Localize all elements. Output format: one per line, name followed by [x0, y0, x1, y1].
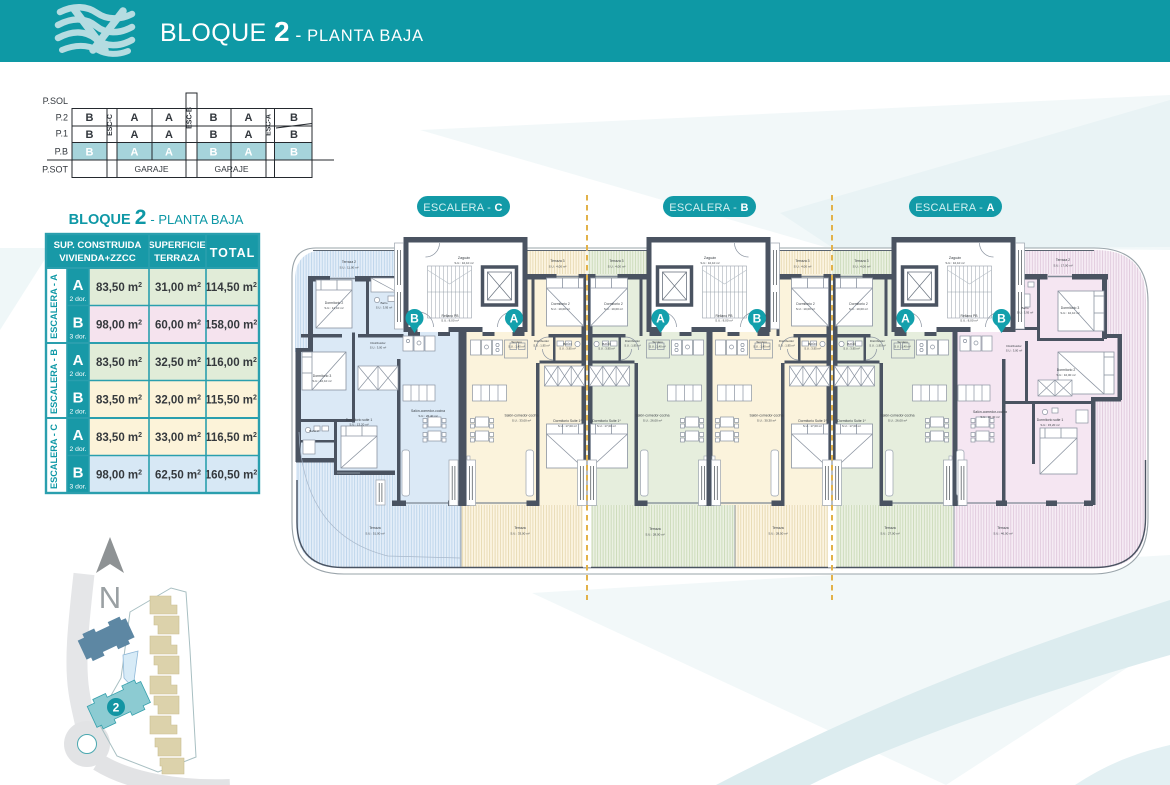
svg-text:Salón-comedor-cocina: Salón-comedor-cocina: [750, 414, 784, 418]
svg-text:S.U.: 17,00 m²: S.U.: 17,00 m²: [1053, 264, 1072, 268]
svg-text:Dormitorio 3: Dormitorio 3: [313, 374, 332, 378]
svg-text:Terraza 3: Terraza 3: [795, 259, 809, 263]
svg-text:158,00 m2: 158,00 m2: [205, 320, 258, 332]
svg-text:83,50 m2: 83,50 m2: [96, 432, 142, 444]
svg-text:P.1: P.1: [56, 129, 68, 139]
svg-text:ESCALERA - B: ESCALERA - B: [669, 202, 748, 214]
svg-text:S.U.: 30,40 m²: S.U.: 30,40 m²: [980, 415, 999, 419]
svg-text:Salón-comedor-cocina: Salón-comedor-cocina: [636, 414, 670, 418]
svg-text:A: A: [131, 129, 139, 141]
svg-text:P.B: P.B: [55, 147, 68, 157]
svg-text:ESC-C: ESC-C: [107, 114, 114, 136]
svg-text:A: A: [901, 312, 910, 326]
svg-text:S.U.: 27,00 m²: S.U.: 27,00 m²: [880, 532, 899, 536]
svg-text:Dormitorio 2: Dormitorio 2: [325, 301, 344, 305]
svg-text:Terraza: Terraza: [649, 527, 660, 531]
svg-text:S.U.: 1,40 m²: S.U.: 1,40 m²: [649, 345, 666, 349]
svg-text:Distribuidor: Distribuidor: [1006, 344, 1021, 348]
svg-text:Distribuidor: Distribuidor: [625, 339, 640, 343]
svg-text:32,00 m2: 32,00 m2: [155, 395, 201, 407]
svg-text:S.U.: 10,10 m²: S.U.: 10,10 m²: [312, 379, 331, 383]
svg-text:2 dor.: 2 dor.: [69, 409, 86, 416]
svg-text:S.U.: 1,40 m²: S.U.: 1,40 m²: [753, 345, 770, 349]
svg-text:S.U.: 1,40 m²: S.U.: 1,40 m²: [508, 345, 525, 349]
svg-text:P.2: P.2: [56, 113, 68, 123]
svg-text:A: A: [165, 112, 173, 124]
svg-text:ESCALERA - B: ESCALERA - B: [49, 349, 59, 414]
svg-text:S.U.: 1,95 m²: S.U.: 1,95 m²: [624, 344, 641, 348]
svg-text:Dormitorio Suite 1º: Dormitorio Suite 1º: [592, 419, 621, 423]
svg-text:116,50 m2: 116,50 m2: [205, 432, 257, 444]
svg-text:Terraza: Terraza: [997, 526, 1008, 530]
svg-text:3 dor.: 3 dor.: [69, 484, 86, 491]
svg-text:S.U.: 4,00 m²: S.U.: 4,00 m²: [794, 265, 812, 269]
svg-text:Zaguán: Zaguán: [704, 256, 716, 260]
svg-text:GARAJE: GARAJE: [134, 164, 168, 174]
svg-text:S.U.: 11,00 m²: S.U.: 11,00 m²: [339, 266, 358, 270]
svg-text:S.U.: 10,10 m²: S.U.: 10,10 m²: [1060, 311, 1079, 315]
svg-text:S.U.: 3,95 m²: S.U.: 3,95 m²: [559, 347, 576, 351]
svg-text:A: A: [131, 112, 139, 124]
svg-text:62,50 m2: 62,50 m2: [155, 470, 201, 482]
svg-text:S.U.: 8,00 m²: S.U.: 8,00 m²: [441, 319, 459, 323]
svg-text:SUP. CONSTRUIDA: SUP. CONSTRUIDA: [54, 240, 142, 251]
svg-text:S.U.: 4,00 m²: S.U.: 4,00 m²: [608, 265, 626, 269]
svg-text:S.U.: 33,00 m²: S.U.: 33,00 m²: [512, 419, 531, 423]
svg-text:A: A: [165, 147, 173, 159]
svg-text:S.U.: 26,40 m²: S.U.: 26,40 m²: [418, 414, 437, 418]
svg-text:BLOQUE 2 - PLANTA BAJA: BLOQUE 2 - PLANTA BAJA: [69, 206, 244, 229]
svg-text:Dormitorio suite 1: Dormitorio suite 1: [1037, 418, 1064, 422]
svg-text:B: B: [290, 129, 298, 141]
svg-text:S.U.: 3,00 m²: S.U.: 3,00 m²: [370, 346, 387, 350]
svg-text:Rellano PB: Rellano PB: [442, 314, 460, 318]
svg-text:A: A: [73, 277, 84, 294]
svg-text:Tendero: Tendero: [897, 340, 908, 344]
svg-text:Tendero: Tendero: [756, 340, 767, 344]
svg-text:S.U.: 46,00 m²: S.U.: 46,00 m²: [993, 532, 1012, 536]
svg-text:Dormitorio 2: Dormitorio 2: [551, 302, 570, 306]
svg-text:Terraza: Terraza: [884, 526, 895, 530]
svg-text:S.U.: 8,00 m²: S.U.: 8,00 m²: [715, 319, 733, 323]
svg-text:Tendero: Tendero: [652, 340, 663, 344]
svg-text:S.U.: 3,95 m²: S.U.: 3,95 m²: [843, 347, 860, 351]
svg-text:A: A: [73, 352, 84, 369]
svg-text:B: B: [290, 112, 298, 124]
svg-text:B: B: [210, 112, 218, 124]
svg-text:S.U.: 10,00 m²: S.U.: 10,00 m²: [604, 307, 623, 311]
svg-text:160,50 m2: 160,50 m2: [205, 470, 258, 482]
svg-text:B: B: [997, 312, 1006, 326]
svg-text:Dormitorio suite 1: Dormitorio suite 1: [346, 418, 373, 422]
svg-text:B: B: [86, 129, 94, 141]
svg-text:S.U.: 8,00 m²: S.U.: 8,00 m²: [960, 319, 978, 323]
svg-text:Terraza 3: Terraza 3: [854, 259, 868, 263]
svg-text:A: A: [510, 312, 519, 326]
svg-text:S.U.: 10,00 m²: S.U.: 10,00 m²: [1056, 373, 1075, 377]
svg-text:ESCALERA - C: ESCALERA - C: [423, 202, 502, 214]
svg-text:Terraza: Terraza: [772, 526, 783, 530]
svg-text:TERRAZA: TERRAZA: [154, 253, 200, 264]
svg-text:Rellano PB: Rellano PB: [961, 314, 979, 318]
svg-text:ESCALERA - A: ESCALERA - A: [49, 274, 59, 339]
svg-text:Terraza 2: Terraza 2: [342, 260, 356, 264]
svg-text:B: B: [86, 147, 94, 159]
svg-text:Dormitorio 2: Dormitorio 2: [604, 302, 623, 306]
svg-text:S.U.: 10,10 m²: S.U.: 10,10 m²: [454, 261, 473, 265]
svg-text:S.U.: 26,00 m²: S.U.: 26,00 m²: [888, 419, 907, 423]
svg-text:S.U.: 10,10 m²: S.U.: 10,10 m²: [945, 261, 964, 265]
svg-text:S.U.: 1,95 m²: S.U.: 1,95 m²: [869, 344, 886, 348]
svg-text:S.U.: 15,20 m²: S.U.: 15,20 m²: [1040, 423, 1059, 427]
svg-text:ESCALERA - A: ESCALERA - A: [915, 202, 994, 214]
svg-text:BAÑO: BAÑO: [847, 341, 856, 346]
svg-text:Dormitorio 2: Dormitorio 2: [796, 302, 815, 306]
svg-text:Zaguán: Zaguán: [458, 256, 470, 260]
svg-text:Zaguán: Zaguán: [949, 256, 961, 260]
svg-text:S.U.: 51,00 m²: S.U.: 51,00 m²: [365, 532, 384, 536]
svg-text:S.U.: 28,50 m²: S.U.: 28,50 m²: [768, 532, 787, 536]
svg-text:Salón-comedor-cocina: Salón-comedor-cocina: [411, 409, 445, 413]
svg-text:S.U.: 28,00 m²: S.U.: 28,00 m²: [645, 533, 664, 537]
svg-text:Dormitorio Suite 1º: Dormitorio Suite 1º: [837, 419, 866, 423]
svg-text:2: 2: [113, 701, 120, 715]
svg-text:ESCALERA - C: ESCALERA - C: [49, 424, 59, 489]
svg-text:A: A: [165, 129, 173, 141]
svg-text:98,00 m2: 98,00 m2: [96, 320, 142, 332]
svg-text:83,50 m2: 83,50 m2: [96, 357, 142, 369]
svg-text:115,50 m2: 115,50 m2: [205, 395, 257, 407]
svg-text:A: A: [245, 112, 253, 124]
svg-text:S.U.: 17,00 m²: S.U.: 17,00 m²: [558, 424, 577, 428]
svg-text:Baño: Baño: [380, 301, 387, 305]
svg-text:3 dor.: 3 dor.: [69, 334, 86, 341]
svg-text:ESC-B: ESC-B: [187, 107, 194, 129]
svg-text:114,50 m2: 114,50 m2: [205, 282, 257, 294]
svg-text:ESC-A: ESC-A: [266, 114, 273, 136]
svg-text:BAÑO: BAÑO: [808, 341, 817, 346]
svg-text:S.U.: 26,00 m²: S.U.: 26,00 m²: [643, 419, 662, 423]
svg-text:S.U.: 10,00 m²: S.U.: 10,00 m²: [796, 307, 815, 311]
svg-text:S.U.: 12,10 m²: S.U.: 12,10 m²: [324, 306, 343, 310]
svg-text:Dormitorio Suite 1º: Dormitorio Suite 1º: [553, 419, 582, 423]
svg-text:S.U.: 17,00 m²: S.U.: 17,00 m²: [803, 424, 822, 428]
svg-text:31,00 m2: 31,00 m2: [155, 282, 201, 294]
svg-text:B: B: [73, 465, 84, 482]
svg-text:98,00 m2: 98,00 m2: [96, 470, 142, 482]
svg-text:SUPERFICIE: SUPERFICIE: [148, 240, 206, 251]
svg-text:Dormitorio 2: Dormitorio 2: [849, 302, 868, 306]
svg-text:B: B: [210, 129, 218, 141]
svg-text:Distribuidor: Distribuidor: [370, 341, 385, 345]
svg-text:33,00 m2: 33,00 m2: [155, 432, 201, 444]
svg-text:P.SOL: P.SOL: [43, 96, 68, 106]
svg-text:Terraza 3: Terraza 3: [609, 259, 623, 263]
svg-text:S.U.: 1,95 m²: S.U.: 1,95 m²: [778, 344, 795, 348]
svg-text:2 dor.: 2 dor.: [69, 446, 86, 453]
svg-text:S.U.: 3,95 m²: S.U.: 3,95 m²: [376, 306, 393, 310]
svg-text:BAÑO: BAÑO: [602, 341, 611, 346]
svg-text:Salón-comedor-cocina: Salón-comedor-cocina: [973, 410, 1007, 414]
svg-text:A: A: [656, 312, 665, 326]
svg-text:Dormitorio 3: Dormitorio 3: [1061, 306, 1080, 310]
svg-text:S.U.: 3,95 m²: S.U.: 3,95 m²: [598, 347, 615, 351]
svg-text:B: B: [86, 112, 94, 124]
svg-text:116,00 m2: 116,00 m2: [205, 357, 257, 369]
svg-text:TOTAL: TOTAL: [210, 246, 256, 260]
svg-text:GARAJE: GARAJE: [214, 164, 248, 174]
svg-text:Dormitorio 2: Dormitorio 2: [1057, 368, 1076, 372]
svg-text:VIVIENDA+ZZCC: VIVIENDA+ZZCC: [59, 253, 136, 264]
svg-text:S.U.: 17,00 m²: S.U.: 17,00 m²: [842, 424, 861, 428]
svg-text:B: B: [753, 312, 762, 326]
svg-text:B: B: [73, 390, 84, 407]
svg-text:S.U.: 3,95 m²: S.U.: 3,95 m²: [804, 347, 821, 351]
svg-text:Tendero: Tendero: [511, 340, 522, 344]
svg-text:Terraza 3: Terraza 3: [550, 259, 564, 263]
svg-text:N: N: [99, 580, 121, 615]
svg-text:Dormitorio Suite 1º: Dormitorio Suite 1º: [798, 419, 827, 423]
svg-text:S.U.: 10,00 m²: S.U.: 10,00 m²: [551, 307, 570, 311]
svg-text:Distribuidor: Distribuidor: [779, 339, 794, 343]
svg-text:A: A: [131, 147, 139, 159]
svg-text:Baño 2: Baño 2: [309, 429, 319, 433]
svg-text:2 dor.: 2 dor.: [69, 296, 86, 303]
svg-text:B: B: [73, 315, 84, 332]
svg-text:Salón-comedor-cocina: Salón-comedor-cocina: [881, 414, 915, 418]
svg-text:Distribuidor: Distribuidor: [534, 339, 549, 343]
svg-text:S.U.: 1,40 m²: S.U.: 1,40 m²: [894, 345, 911, 349]
svg-text:Terraza: Terraza: [369, 526, 380, 530]
svg-text:Salón-comedor-cocina: Salón-comedor-cocina: [505, 414, 539, 418]
svg-text:S.U.: 1,95 m²: S.U.: 1,95 m²: [533, 344, 550, 348]
svg-text:B: B: [210, 147, 218, 159]
svg-text:32,50 m2: 32,50 m2: [155, 357, 201, 369]
svg-text:60,00 m2: 60,00 m2: [155, 320, 201, 332]
svg-text:BAÑO: BAÑO: [563, 341, 572, 346]
svg-text:Distribuidor: Distribuidor: [870, 339, 885, 343]
svg-text:Terraza 2: Terraza 2: [1056, 258, 1070, 262]
svg-text:A: A: [245, 129, 253, 141]
svg-text:Terraza: Terraza: [514, 526, 525, 530]
svg-text:B: B: [410, 312, 419, 326]
svg-text:S.U.: 3,00 m²: S.U.: 3,00 m²: [1006, 349, 1023, 353]
svg-text:S.U.: 33,00 m²: S.U.: 33,00 m²: [510, 532, 529, 536]
svg-text:B: B: [290, 147, 298, 159]
svg-text:Baño: Baño: [1021, 306, 1028, 310]
svg-text:2 dor.: 2 dor.: [69, 371, 86, 378]
svg-text:S.U.: 10,10 m²: S.U.: 10,10 m²: [700, 261, 719, 265]
svg-text:S.U.: 4,00 m²: S.U.: 4,00 m²: [853, 265, 871, 269]
svg-text:S.U.: 13,20 m²: S.U.: 13,20 m²: [349, 423, 368, 427]
svg-text:S.U.: 10,00 m²: S.U.: 10,00 m²: [849, 307, 868, 311]
svg-text:S.U.: 4,00 m²: S.U.: 4,00 m²: [549, 265, 567, 269]
svg-text:A: A: [73, 427, 84, 444]
svg-text:S.U.: 3,95 m²: S.U.: 3,95 m²: [1017, 311, 1034, 315]
svg-text:83,50 m2: 83,50 m2: [96, 395, 142, 407]
svg-text:A: A: [245, 147, 253, 159]
svg-text:83,50 m2: 83,50 m2: [96, 282, 142, 294]
svg-text:S.U.: 17,00 m²: S.U.: 17,00 m²: [597, 424, 616, 428]
svg-text:S.U.: 30,30 m²: S.U.: 30,30 m²: [757, 419, 776, 423]
svg-text:P.SOT: P.SOT: [42, 165, 68, 175]
svg-text:Rellano PB: Rellano PB: [716, 314, 734, 318]
